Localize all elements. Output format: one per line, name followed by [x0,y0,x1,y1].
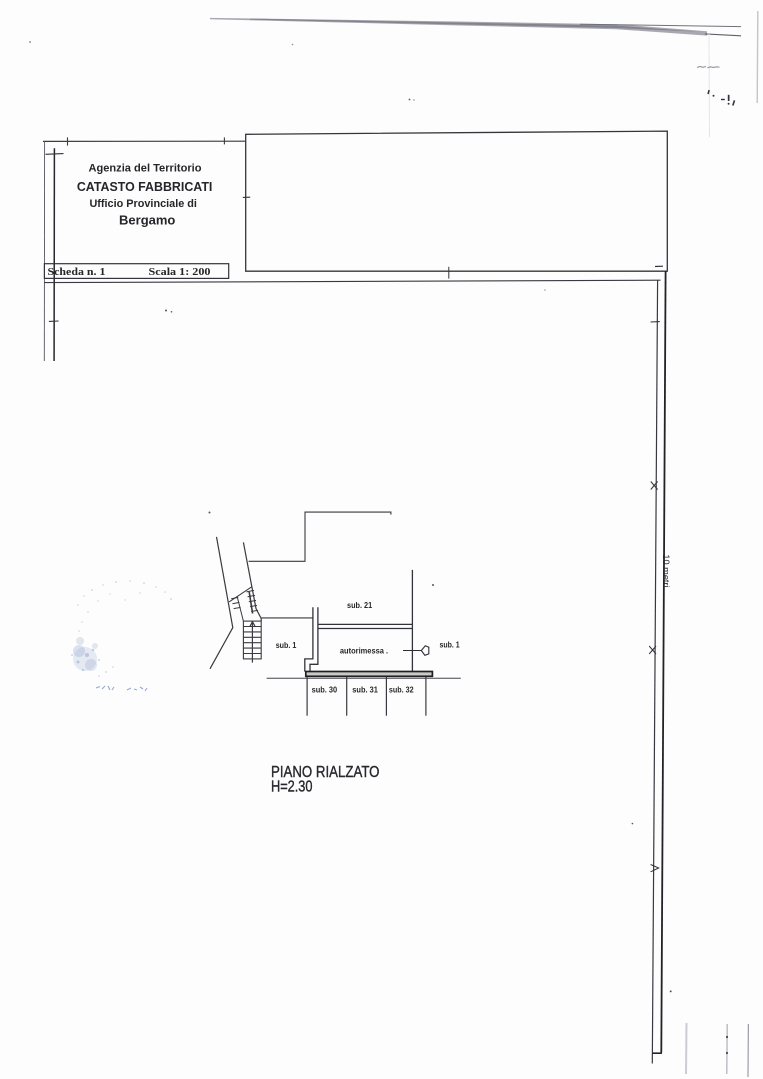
svg-text:sub. 31: sub. 31 [352,686,378,695]
svg-text:sub. 1: sub. 1 [440,640,461,649]
svg-text:CATASTO FABBRICATI: CATASTO FABBRICATI [77,180,213,194]
svg-text:Scheda n. 1: Scheda n. 1 [48,266,106,278]
svg-text:autorimessa .: autorimessa . [340,647,388,656]
svg-text:Ufficio Provinciale di: Ufficio Provinciale di [89,198,197,210]
svg-text:Bergamo: Bergamo [119,213,175,228]
svg-text:sub. 30: sub. 30 [312,686,338,695]
svg-text:10 metri: 10 metri [661,554,671,587]
svg-text:H=2.30: H=2.30 [271,778,313,795]
svg-text:sub. 1: sub. 1 [276,641,297,650]
svg-text:Agenzia del Territorio: Agenzia del Territorio [89,163,202,175]
svg-text:Scala 1: 200: Scala 1: 200 [149,266,212,278]
svg-text:sub. 32: sub. 32 [389,686,414,695]
svg-text:sub. 21: sub. 21 [347,601,373,610]
